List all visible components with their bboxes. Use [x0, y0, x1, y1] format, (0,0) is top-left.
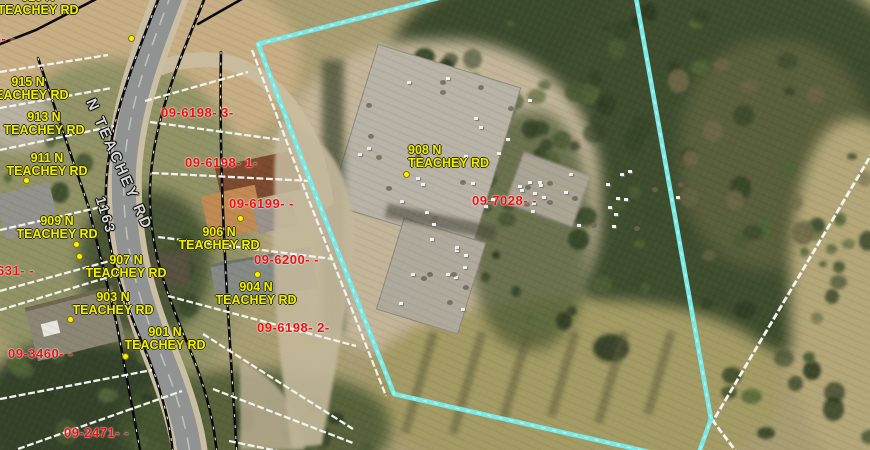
address-point-marker[interactable] — [67, 316, 74, 323]
address-point-marker[interactable] — [403, 171, 410, 178]
address-street: TEACHEY RD — [85, 267, 166, 280]
address-label: 911 NTEACHEY RD — [6, 152, 87, 178]
address-point-marker[interactable] — [23, 177, 30, 184]
address-point-marker[interactable] — [73, 241, 80, 248]
address-label: 904 NTEACHEY RD — [215, 281, 296, 307]
address-street: TEACHEY RD — [124, 339, 205, 352]
road-name-label: N TEACHEY RD — [84, 97, 154, 232]
address-label: 909 NTEACHEY RD — [16, 215, 97, 241]
address-street: TEACHEY RD — [0, 89, 69, 102]
address-street: TEACHEY RD — [16, 228, 97, 241]
address-street: TEACHEY RD — [215, 294, 296, 307]
address-label: 913 NTEACHEY RD — [3, 111, 84, 137]
parcel-id-label[interactable]: 09-6200- - — [254, 253, 319, 266]
parcel-id-label[interactable]: 631- - — [0, 264, 34, 277]
address-label: 901 NTEACHEY RD — [124, 326, 205, 352]
address-street: TEACHEY RD — [3, 124, 84, 137]
address-street: TEACHEY RD — [408, 157, 489, 170]
address-point-marker[interactable] — [122, 353, 129, 360]
address-label: 907 NTEACHEY RD — [85, 254, 166, 280]
address-label: 906 NTEACHEY RD — [178, 226, 259, 252]
address-label: 915 NTEACHEY RD — [0, 76, 69, 102]
address-street: TEACHEY RD — [6, 165, 87, 178]
parcel-id-label[interactable]: 09-6199- - — [229, 197, 294, 210]
parcel-id-label[interactable]: 09-6198- 3- — [161, 106, 234, 119]
map-labels-layer: 63- -09-6198- 3-09-6198- 1-09-6199- -09-… — [0, 0, 870, 450]
address-street: TEACHEY RD — [0, 4, 79, 17]
parcel-id-label[interactable]: 63- - — [0, 32, 15, 45]
parcel-id-label[interactable]: 09-3460- - — [8, 347, 73, 360]
address-point-marker[interactable] — [237, 215, 244, 222]
parcel-id-label[interactable]: 09-6198- 2- — [257, 321, 330, 334]
address-street: TEACHEY RD — [72, 304, 153, 317]
parcel-id-label[interactable]: 09-7028- - — [472, 194, 537, 207]
parcel-id-label[interactable]: 09-6198- 1- — [185, 156, 258, 169]
address-street: TEACHEY RD — [178, 239, 259, 252]
parcel-id-label[interactable]: 09-2471- - — [64, 426, 129, 439]
address-point-marker[interactable] — [128, 35, 135, 42]
address-label: 908 NTEACHEY RD — [408, 144, 489, 170]
address-label: 903 NTEACHEY RD — [72, 291, 153, 317]
address-label: 919 NTEACHEY RD — [0, 0, 79, 17]
address-point-marker[interactable] — [76, 253, 83, 260]
address-point-marker[interactable] — [254, 271, 261, 278]
map-canvas[interactable]: 63- -09-6198- 3-09-6198- 1-09-6199- -09-… — [0, 0, 870, 450]
